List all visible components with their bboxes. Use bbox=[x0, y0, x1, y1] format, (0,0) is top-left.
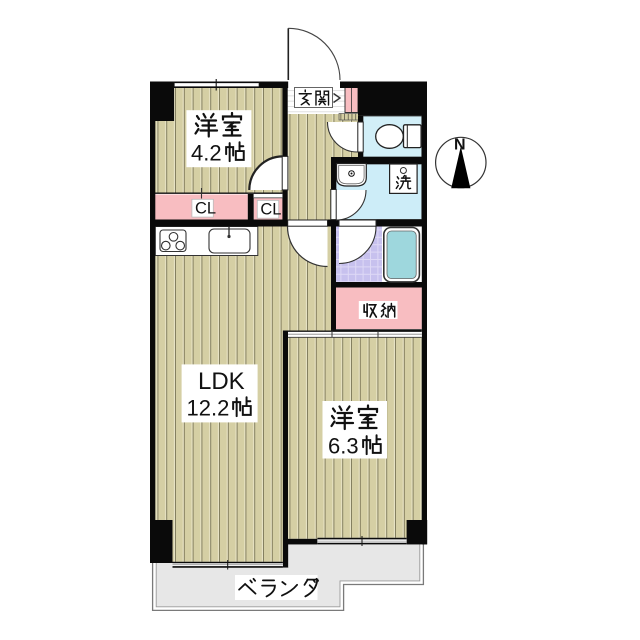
svg-text:4.2: 4.2 bbox=[191, 141, 222, 166]
svg-text:LDK: LDK bbox=[198, 368, 245, 395]
svg-text:CL: CL bbox=[195, 200, 216, 218]
svg-text:N: N bbox=[454, 137, 466, 154]
svg-text:CL: CL bbox=[260, 201, 281, 219]
svg-text:12.2: 12.2 bbox=[187, 396, 230, 421]
svg-text:6.3: 6.3 bbox=[328, 434, 359, 459]
